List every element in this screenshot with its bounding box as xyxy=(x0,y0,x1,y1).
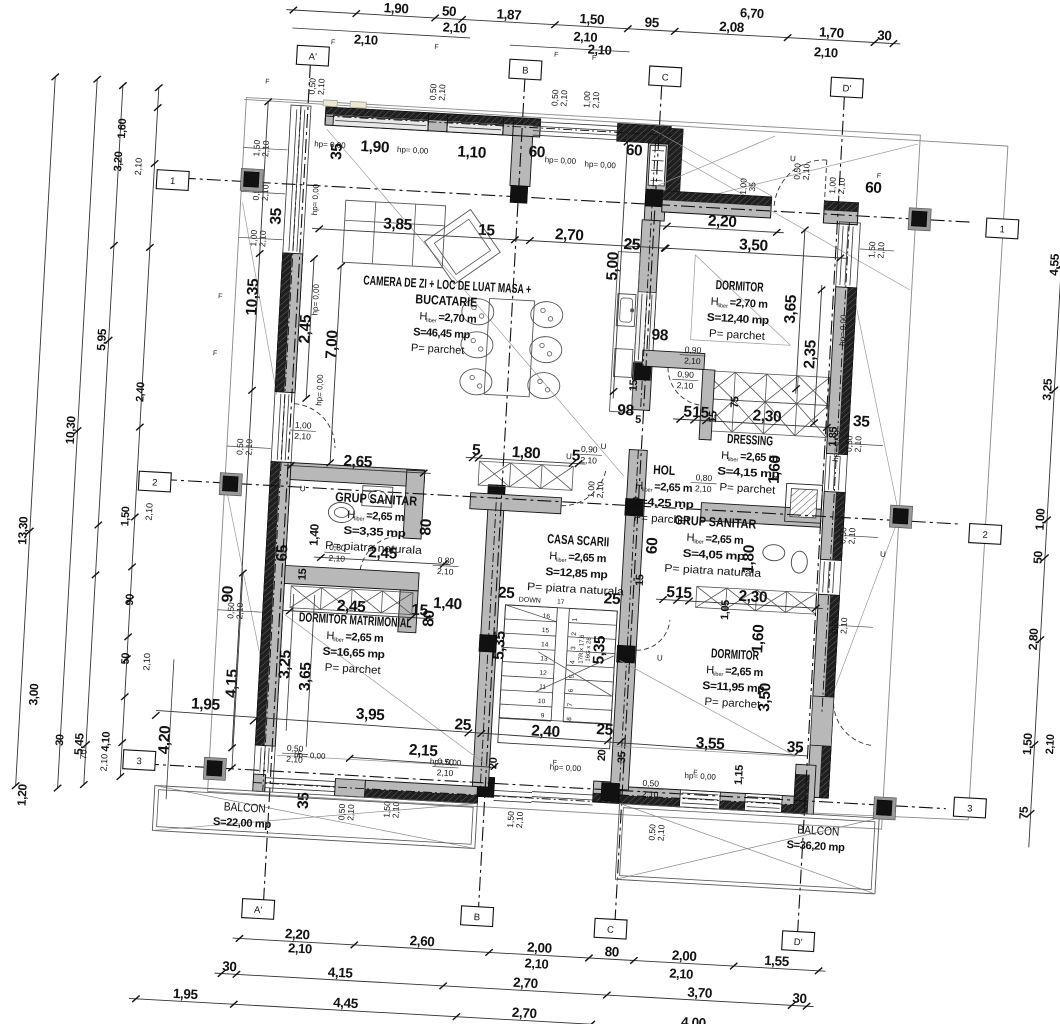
svg-text:2,45: 2,45 xyxy=(296,314,315,344)
svg-text:F: F xyxy=(693,770,698,777)
svg-text:=2,70 m: =2,70 m xyxy=(438,312,477,326)
svg-text:3,20: 3,20 xyxy=(112,151,125,172)
svg-text:hp= 0,00: hp= 0,00 xyxy=(831,430,842,462)
svg-text:DOWN: DOWN xyxy=(518,597,541,605)
svg-text:4,45: 4,45 xyxy=(333,995,359,1011)
svg-text:hp= 0,00: hp= 0,00 xyxy=(310,183,321,215)
svg-text:liber: liber xyxy=(713,671,724,678)
svg-text:=2,70 m: =2,70 m xyxy=(729,297,768,311)
svg-text:1,87: 1,87 xyxy=(496,6,521,22)
svg-text:0,80: 0,80 xyxy=(695,472,712,483)
svg-text:15: 15 xyxy=(297,568,310,580)
svg-text:5,35: 5,35 xyxy=(590,635,609,665)
svg-text:2,45: 2,45 xyxy=(336,597,366,616)
svg-text:5,95: 5,95 xyxy=(94,328,109,351)
svg-text:2,10: 2,10 xyxy=(345,804,356,821)
svg-text:1,95: 1,95 xyxy=(191,695,221,714)
svg-text:80: 80 xyxy=(604,944,619,960)
svg-text:liber: liber xyxy=(728,457,739,464)
svg-text:2,65: 2,65 xyxy=(343,453,373,472)
svg-text:90: 90 xyxy=(124,594,137,606)
svg-text:3,50: 3,50 xyxy=(756,683,775,712)
svg-text:2,10: 2,10 xyxy=(442,19,467,35)
svg-text:3,70: 3,70 xyxy=(687,985,712,1001)
svg-text:30: 30 xyxy=(877,28,892,44)
svg-text:1,50: 1,50 xyxy=(579,11,604,27)
svg-text:2,10: 2,10 xyxy=(141,653,152,671)
svg-text:25: 25 xyxy=(497,584,515,602)
svg-text:3,55: 3,55 xyxy=(695,735,725,754)
svg-text:60: 60 xyxy=(865,179,882,197)
svg-text:2,10: 2,10 xyxy=(558,89,569,106)
svg-text:F: F xyxy=(331,39,336,46)
svg-text:1,60: 1,60 xyxy=(749,624,768,653)
svg-text:2,10: 2,10 xyxy=(99,754,110,772)
svg-text:U: U xyxy=(600,442,606,451)
svg-text:F: F xyxy=(218,293,223,300)
svg-text:HOL: HOL xyxy=(653,462,676,478)
svg-text:80: 80 xyxy=(417,519,435,536)
svg-text:2,10: 2,10 xyxy=(814,44,839,60)
svg-text:4,10: 4,10 xyxy=(100,731,113,752)
svg-text:hp= 0,00: hp= 0,00 xyxy=(544,155,576,166)
svg-text:2,10: 2,10 xyxy=(684,355,701,366)
svg-text:3,65: 3,65 xyxy=(782,294,801,324)
svg-text:0,90: 0,90 xyxy=(684,344,701,355)
svg-text:1,50: 1,50 xyxy=(119,506,132,527)
svg-text:DRESSING: DRESSING xyxy=(727,431,774,449)
svg-text:10: 10 xyxy=(538,698,546,705)
svg-text:20: 20 xyxy=(596,749,609,761)
svg-text:12: 12 xyxy=(539,670,547,677)
svg-text:50: 50 xyxy=(1031,550,1046,564)
svg-text:35: 35 xyxy=(853,413,871,431)
svg-text:0,90: 0,90 xyxy=(581,444,598,455)
svg-text:3,65: 3,65 xyxy=(296,661,315,691)
svg-text:0,80: 0,80 xyxy=(437,555,454,566)
svg-text:1: 1 xyxy=(170,176,176,187)
svg-text:B: B xyxy=(522,65,529,76)
svg-text:25: 25 xyxy=(596,721,614,739)
svg-text:=2,65 m: =2,65 m xyxy=(345,631,384,645)
svg-text:2,10: 2,10 xyxy=(669,966,694,982)
svg-text:3,25: 3,25 xyxy=(276,649,295,679)
svg-text:1,50: 1,50 xyxy=(1020,732,1035,755)
svg-text:10,30: 10,30 xyxy=(63,415,79,444)
svg-text:15: 15 xyxy=(634,574,647,586)
svg-text:C: C xyxy=(607,924,615,935)
svg-text:C: C xyxy=(661,72,669,83)
svg-text:70: 70 xyxy=(78,749,89,760)
svg-text:3,95: 3,95 xyxy=(355,706,385,725)
svg-text:15: 15 xyxy=(707,411,720,423)
svg-text:=2,65 m: =2,65 m xyxy=(568,551,607,565)
svg-text:A': A' xyxy=(254,905,263,916)
svg-text:10,35: 10,35 xyxy=(243,278,262,316)
svg-text:1,55: 1,55 xyxy=(764,953,790,969)
svg-text:98: 98 xyxy=(651,327,669,345)
svg-text:2,10: 2,10 xyxy=(437,566,454,577)
svg-text:2,10: 2,10 xyxy=(437,84,448,101)
svg-text:1,10: 1,10 xyxy=(457,143,486,162)
svg-text:7,00: 7,00 xyxy=(323,330,342,359)
svg-text:F: F xyxy=(298,750,303,757)
svg-text:2,10: 2,10 xyxy=(590,91,601,108)
svg-text:2,70: 2,70 xyxy=(513,975,538,991)
svg-text:30: 30 xyxy=(792,990,807,1006)
svg-text:2,45: 2,45 xyxy=(368,544,398,563)
svg-text:1,40: 1,40 xyxy=(433,595,462,614)
svg-text:1,05: 1,05 xyxy=(719,600,732,621)
svg-text:17: 17 xyxy=(557,599,565,606)
svg-text:2,10: 2,10 xyxy=(294,431,311,442)
svg-text:2,80: 2,80 xyxy=(1026,627,1041,650)
svg-text:2,10: 2,10 xyxy=(133,158,144,176)
svg-text:DORMITOR: DORMITOR xyxy=(715,277,764,295)
svg-text:2,10: 2,10 xyxy=(524,955,549,971)
svg-text:2,10: 2,10 xyxy=(801,163,812,180)
svg-text:A': A' xyxy=(308,51,317,62)
svg-text:3: 3 xyxy=(136,756,142,767)
svg-text:F: F xyxy=(434,44,439,51)
svg-text:2,10: 2,10 xyxy=(316,78,327,95)
svg-text:2,20: 2,20 xyxy=(707,213,736,232)
svg-text:35: 35 xyxy=(295,791,313,809)
svg-text:2: 2 xyxy=(152,477,158,488)
svg-text:15: 15 xyxy=(542,627,550,634)
svg-text:liber: liber xyxy=(693,539,704,546)
svg-text:4,00: 4,00 xyxy=(681,1014,706,1024)
svg-text:liber: liber xyxy=(717,303,728,310)
svg-text:2,10: 2,10 xyxy=(676,380,693,391)
svg-text:2,08: 2,08 xyxy=(719,19,745,35)
svg-text:hp= 0,00: hp= 0,00 xyxy=(314,374,325,406)
svg-text:15: 15 xyxy=(675,584,693,602)
svg-text:U: U xyxy=(657,653,663,662)
svg-text:35: 35 xyxy=(616,751,629,763)
svg-text:6,70: 6,70 xyxy=(740,5,765,21)
svg-text:2,10: 2,10 xyxy=(580,455,597,466)
svg-text:F: F xyxy=(265,79,270,86)
svg-text:1,15: 1,15 xyxy=(733,765,746,786)
svg-text:1,95: 1,95 xyxy=(173,986,199,1002)
svg-text:95: 95 xyxy=(644,15,660,31)
svg-text:2,40: 2,40 xyxy=(134,382,147,403)
svg-text:98: 98 xyxy=(617,402,635,420)
svg-text:75: 75 xyxy=(729,396,742,408)
svg-text:liber: liber xyxy=(354,516,365,523)
svg-text:F: F xyxy=(877,173,882,180)
svg-text:5: 5 xyxy=(635,414,642,426)
svg-text:F: F xyxy=(554,52,559,59)
svg-text:B: B xyxy=(474,912,481,923)
svg-text:3,85: 3,85 xyxy=(383,215,413,234)
svg-text:liber: liber xyxy=(642,487,653,494)
svg-text:60: 60 xyxy=(528,143,545,161)
svg-text:1,90: 1,90 xyxy=(383,0,408,16)
svg-text:1,80: 1,80 xyxy=(740,545,759,574)
svg-text:1,90: 1,90 xyxy=(360,138,389,157)
svg-text:35: 35 xyxy=(747,182,758,192)
svg-text:1,00: 1,00 xyxy=(295,420,312,431)
svg-text:2,10: 2,10 xyxy=(514,811,525,828)
svg-text:2,00: 2,00 xyxy=(527,940,552,956)
svg-text:2,30: 2,30 xyxy=(738,588,767,607)
svg-text:hp= 0,00: hp= 0,00 xyxy=(684,771,716,782)
svg-text:30: 30 xyxy=(54,734,67,746)
svg-text:U: U xyxy=(300,484,306,493)
svg-text:2,10: 2,10 xyxy=(642,789,659,800)
svg-text:2,00: 2,00 xyxy=(671,948,696,964)
svg-text:1,00: 1,00 xyxy=(1032,508,1047,531)
svg-text:hp= 0,00: hp= 0,00 xyxy=(584,160,616,171)
svg-text:4,15: 4,15 xyxy=(223,668,242,698)
svg-text:30: 30 xyxy=(222,959,237,975)
svg-text:13,30: 13,30 xyxy=(15,516,31,545)
svg-text:15: 15 xyxy=(478,222,496,240)
svg-text:1,20: 1,20 xyxy=(15,783,30,806)
svg-text:1,60: 1,60 xyxy=(116,118,129,139)
svg-text:3,00: 3,00 xyxy=(26,683,41,706)
svg-text:2,30: 2,30 xyxy=(752,407,781,426)
svg-text:3: 3 xyxy=(967,803,973,814)
svg-text:2,10: 2,10 xyxy=(328,553,345,564)
svg-text:80: 80 xyxy=(420,610,438,627)
svg-text:=2,65 m: =2,65 m xyxy=(725,665,764,679)
svg-text:15: 15 xyxy=(628,379,641,391)
svg-text:0,80: 0,80 xyxy=(329,542,346,553)
svg-text:25: 25 xyxy=(623,236,641,254)
svg-text:=2,65 m: =2,65 m xyxy=(654,481,693,495)
svg-text:5,35: 5,35 xyxy=(490,630,509,660)
svg-text:hp= 0,00: hp= 0,00 xyxy=(397,145,429,156)
svg-text:1,40: 1,40 xyxy=(306,523,321,546)
svg-text:2,10: 2,10 xyxy=(695,483,712,494)
svg-text:1,60: 1,60 xyxy=(766,455,785,484)
svg-text:60: 60 xyxy=(644,537,662,554)
svg-text:2,10: 2,10 xyxy=(354,31,379,47)
svg-text:2,60: 2,60 xyxy=(409,933,434,949)
svg-text:1: 1 xyxy=(999,224,1005,235)
svg-text:BALCON: BALCON xyxy=(223,799,266,815)
svg-text:2,10: 2,10 xyxy=(595,481,606,498)
svg-text:35: 35 xyxy=(267,207,285,225)
svg-text:=2,65 m: =2,65 m xyxy=(366,510,405,524)
svg-text:hp= 0,00: hp= 0,00 xyxy=(430,757,462,768)
svg-text:25: 25 xyxy=(603,590,621,608)
svg-text:BALCON: BALCON xyxy=(797,822,840,838)
svg-text:2,70: 2,70 xyxy=(511,1005,536,1021)
svg-text:D': D' xyxy=(793,937,802,948)
svg-text:60: 60 xyxy=(625,142,642,160)
svg-text:3,50: 3,50 xyxy=(739,236,768,255)
svg-text:liber: liber xyxy=(333,637,344,644)
svg-text:50: 50 xyxy=(442,3,457,19)
svg-text:F: F xyxy=(213,350,218,357)
svg-text:=2,65 m: =2,65 m xyxy=(705,533,744,547)
svg-text:90: 90 xyxy=(219,586,237,603)
svg-text:3,25: 3,25 xyxy=(1040,378,1055,401)
svg-text:13: 13 xyxy=(540,655,548,662)
svg-text:4,55: 4,55 xyxy=(1047,253,1060,276)
svg-text:2,10: 2,10 xyxy=(288,940,313,956)
svg-text:0,90: 0,90 xyxy=(677,369,694,380)
svg-text:50: 50 xyxy=(120,652,133,664)
svg-text:2: 2 xyxy=(982,530,988,541)
svg-text:4,20: 4,20 xyxy=(156,725,175,754)
svg-text:14: 14 xyxy=(541,641,549,648)
svg-text:U: U xyxy=(790,154,796,163)
svg-text:1,80: 1,80 xyxy=(511,444,540,463)
svg-text:D': D' xyxy=(842,83,851,94)
svg-text:2,10: 2,10 xyxy=(144,503,155,521)
svg-text:liber: liber xyxy=(426,318,437,325)
svg-text:2,70: 2,70 xyxy=(554,226,583,245)
svg-text:5,00: 5,00 xyxy=(604,252,623,281)
svg-text:65: 65 xyxy=(274,544,292,562)
svg-text:F: F xyxy=(552,760,557,767)
svg-text:75: 75 xyxy=(1016,806,1031,820)
svg-text:2,10: 2,10 xyxy=(836,177,847,194)
svg-text:2,10: 2,10 xyxy=(390,801,401,818)
svg-text:2,10: 2,10 xyxy=(1044,734,1057,755)
svg-text:U: U xyxy=(880,550,886,559)
svg-text:hp= 0,00: hp= 0,00 xyxy=(837,314,848,346)
svg-text:4,15: 4,15 xyxy=(327,964,353,980)
svg-text:2,10: 2,10 xyxy=(436,767,453,778)
svg-text:2,10: 2,10 xyxy=(656,824,667,841)
svg-text:liber: liber xyxy=(556,558,567,565)
svg-text:1,70: 1,70 xyxy=(819,24,844,40)
svg-text:0,50: 0,50 xyxy=(642,778,659,789)
svg-text:hp= 0,00: hp= 0,00 xyxy=(314,139,346,150)
